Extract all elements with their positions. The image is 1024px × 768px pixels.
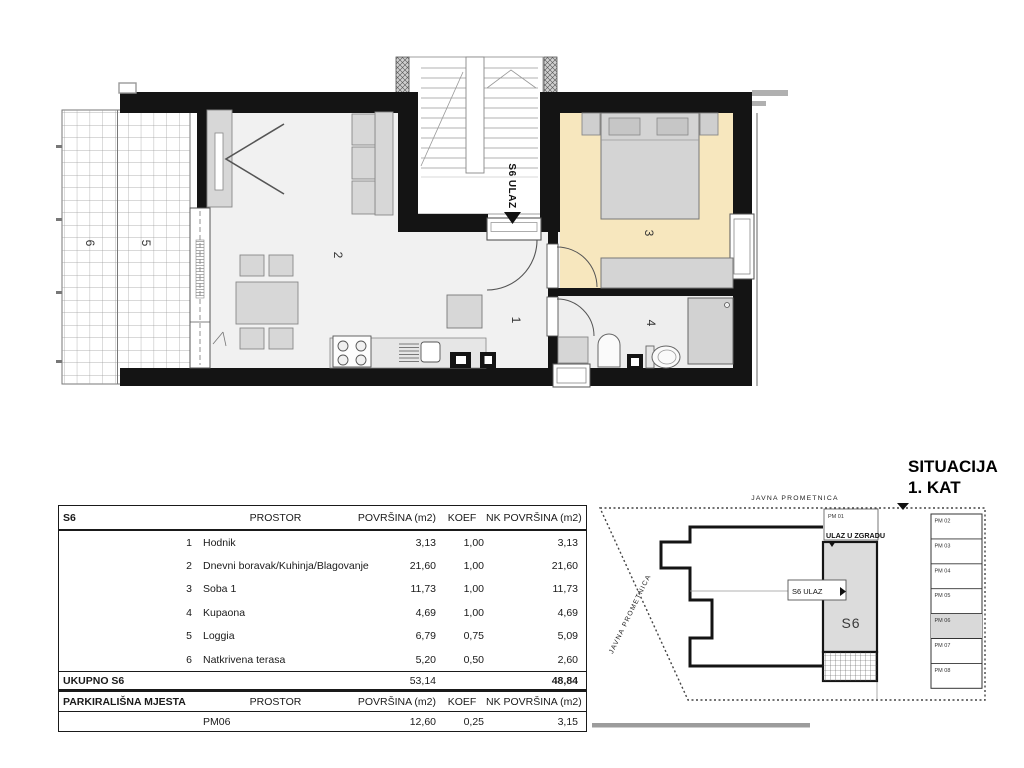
sink [421,342,440,362]
parking-column: PM 02 PM 03 PM 04 PM 05 PM 06 PM 07 PM 0… [931,514,982,688]
room-koef: 1,00 [438,560,486,572]
road-label-left: JAVNA PROMETNICA [608,573,653,655]
room-koef: 1,00 [438,607,486,619]
label-loggia: 5 [139,240,153,247]
label-terrace: 6 [83,240,97,247]
table-row: 4 Kupaona 4,69 1,00 4,69 [59,601,586,624]
vent-stub [119,83,136,93]
room-number: 5 [59,630,197,642]
parking-koef: 0,25 [438,716,486,728]
nightstand [700,113,718,135]
room-name: Soba 1 [197,583,354,595]
col-povrsina: POVRŠINA (m2) [354,512,438,524]
label-bedroom: 3 [642,230,656,237]
room-name: Hodnik [197,537,354,549]
parking-nk: 3,15 [486,716,582,728]
room-name: Natkrivena terasa [197,654,354,666]
room-number: 1 [59,537,197,549]
room-area: 3,13 [354,537,438,549]
room-name: Dnevni boravak/Kuhinja/Blagovanje [197,560,354,572]
table-total-row: UKUPNO S6 53,14 48,84 [59,671,586,689]
nightstand [582,113,600,135]
sofa [352,112,393,215]
bathroom-window [553,364,590,387]
parking-spot-label: PM 02 [935,519,951,525]
table-row: 1 Hodnik 3,13 1,00 3,13 [59,531,586,554]
table-row: 6 Natkrivena terasa 5,20 0,50 2,60 [59,648,586,671]
unit-entrance-callout: S6 ULAZ [788,580,846,600]
total-label: UKUPNO S6 [59,675,197,687]
parking-area: 12,60 [354,716,438,728]
pillow [609,118,640,135]
room-nk: 3,13 [486,537,582,549]
room-koef: 1,00 [438,537,486,549]
room-name: Loggia [197,630,354,642]
room-area: 5,20 [354,654,438,666]
stairwell [396,57,557,214]
roof-stub [752,90,788,96]
situation-title-line2: 1. KAT [908,478,961,497]
room-nk: 5,09 [486,630,582,642]
sink-basin [598,334,620,367]
room-nk: 11,73 [486,583,582,595]
room-koef: 0,50 [438,654,486,666]
col-nk-povrsina: NK POVRŠINA (m2) [486,696,582,708]
pm01-label: PM 01 [828,514,844,520]
roof-stub [752,101,766,106]
fridge [447,295,482,328]
road-label-top: JAVNA PROMETNICA [751,495,838,502]
parking-spot-label: PM 06 [935,618,951,624]
parking-title: PARKIRALIŠNA MJESTA [59,696,197,708]
loggia-sliding-door [190,208,210,368]
col-koef: KOEF [438,696,486,708]
terrace-loggia-floor [56,110,190,384]
situation-title-line1: SITUACIJA [908,457,998,476]
room-number: 4 [59,607,197,619]
label-bath: 4 [644,320,658,327]
room-area: 6,79 [354,630,438,642]
unit-s6-label: S6 [841,615,860,631]
room-nk: 4,69 [486,607,582,619]
total-nk: 48,84 [486,675,582,687]
col-nk-povrsina: NK POVRŠINA (m2) [486,512,582,524]
label-living: 2 [331,252,345,259]
room-area: 11,73 [354,583,438,595]
bedroom-window [730,214,754,279]
pillow [657,118,688,135]
scale-bar [592,723,810,728]
parking-spot-label: PM 05 [935,593,951,599]
col-koef: KOEF [438,512,486,524]
parking-spot-label: PM 07 [935,643,951,649]
north-pointer-icon [897,503,909,510]
s6-ulaz-label: S6 ULAZ [506,163,517,208]
room-koef: 1,00 [438,583,486,595]
col-prostor: PROSTOR [197,696,354,708]
room-area: 21,60 [354,560,438,572]
table-header-row: S6 PROSTOR POVRŠINA (m2) KOEF NK POVRŠIN… [59,506,586,531]
plan-sheet: 1 2 3 4 5 6 S6 ULAZ SITUACIJA 1. KAT JAV… [0,0,1024,768]
col-prostor: PROSTOR [197,512,354,524]
room-area: 4,69 [354,607,438,619]
parking-spot-label: PM 08 [935,668,951,674]
floor-plan: 1 2 3 4 5 6 S6 ULAZ [56,57,788,387]
parking-spot-label: PM 04 [935,568,951,574]
building-entrance-label: ULAZ U ZGRADU [826,531,885,540]
room-number: 3 [59,583,197,595]
room-number: 6 [59,654,197,666]
area-table: S6 PROSTOR POVRŠINA (m2) KOEF NK POVRŠIN… [58,505,587,732]
bedroom-wardrobe [601,258,733,288]
parking-name: PM06 [197,716,354,728]
room-name: Kupaona [197,607,354,619]
label-hall: 1 [509,317,523,324]
shower [688,298,733,364]
situation-plan: SITUACIJA 1. KAT JAVNA PROMETNICA JAVNA … [592,457,998,728]
parking-row: PM06 12,60 0,25 3,15 [59,711,586,731]
parking-spot-label: PM 03 [935,543,951,549]
table-row: 3 Soba 1 11,73 1,00 11,73 [59,578,586,601]
parking-header-row: PARKIRALIŠNA MJESTA PROSTOR POVRŠINA (m2… [59,689,586,711]
table-row: 5 Loggia 6,79 0,75 5,09 [59,625,586,648]
total-area: 53,14 [354,675,438,687]
unit-entrance-label: S6 ULAZ [792,587,823,596]
col-povrsina: POVRŠINA (m2) [354,696,438,708]
room-koef: 0,75 [438,630,486,642]
room-number: 2 [59,560,197,572]
unit-id: S6 [59,512,197,524]
washing-machine [558,337,588,363]
room-nk: 2,60 [486,654,582,666]
room-nk: 21,60 [486,560,582,572]
table-row: 2 Dnevni boravak/Kuhinja/Blagovanje 21,6… [59,554,586,577]
